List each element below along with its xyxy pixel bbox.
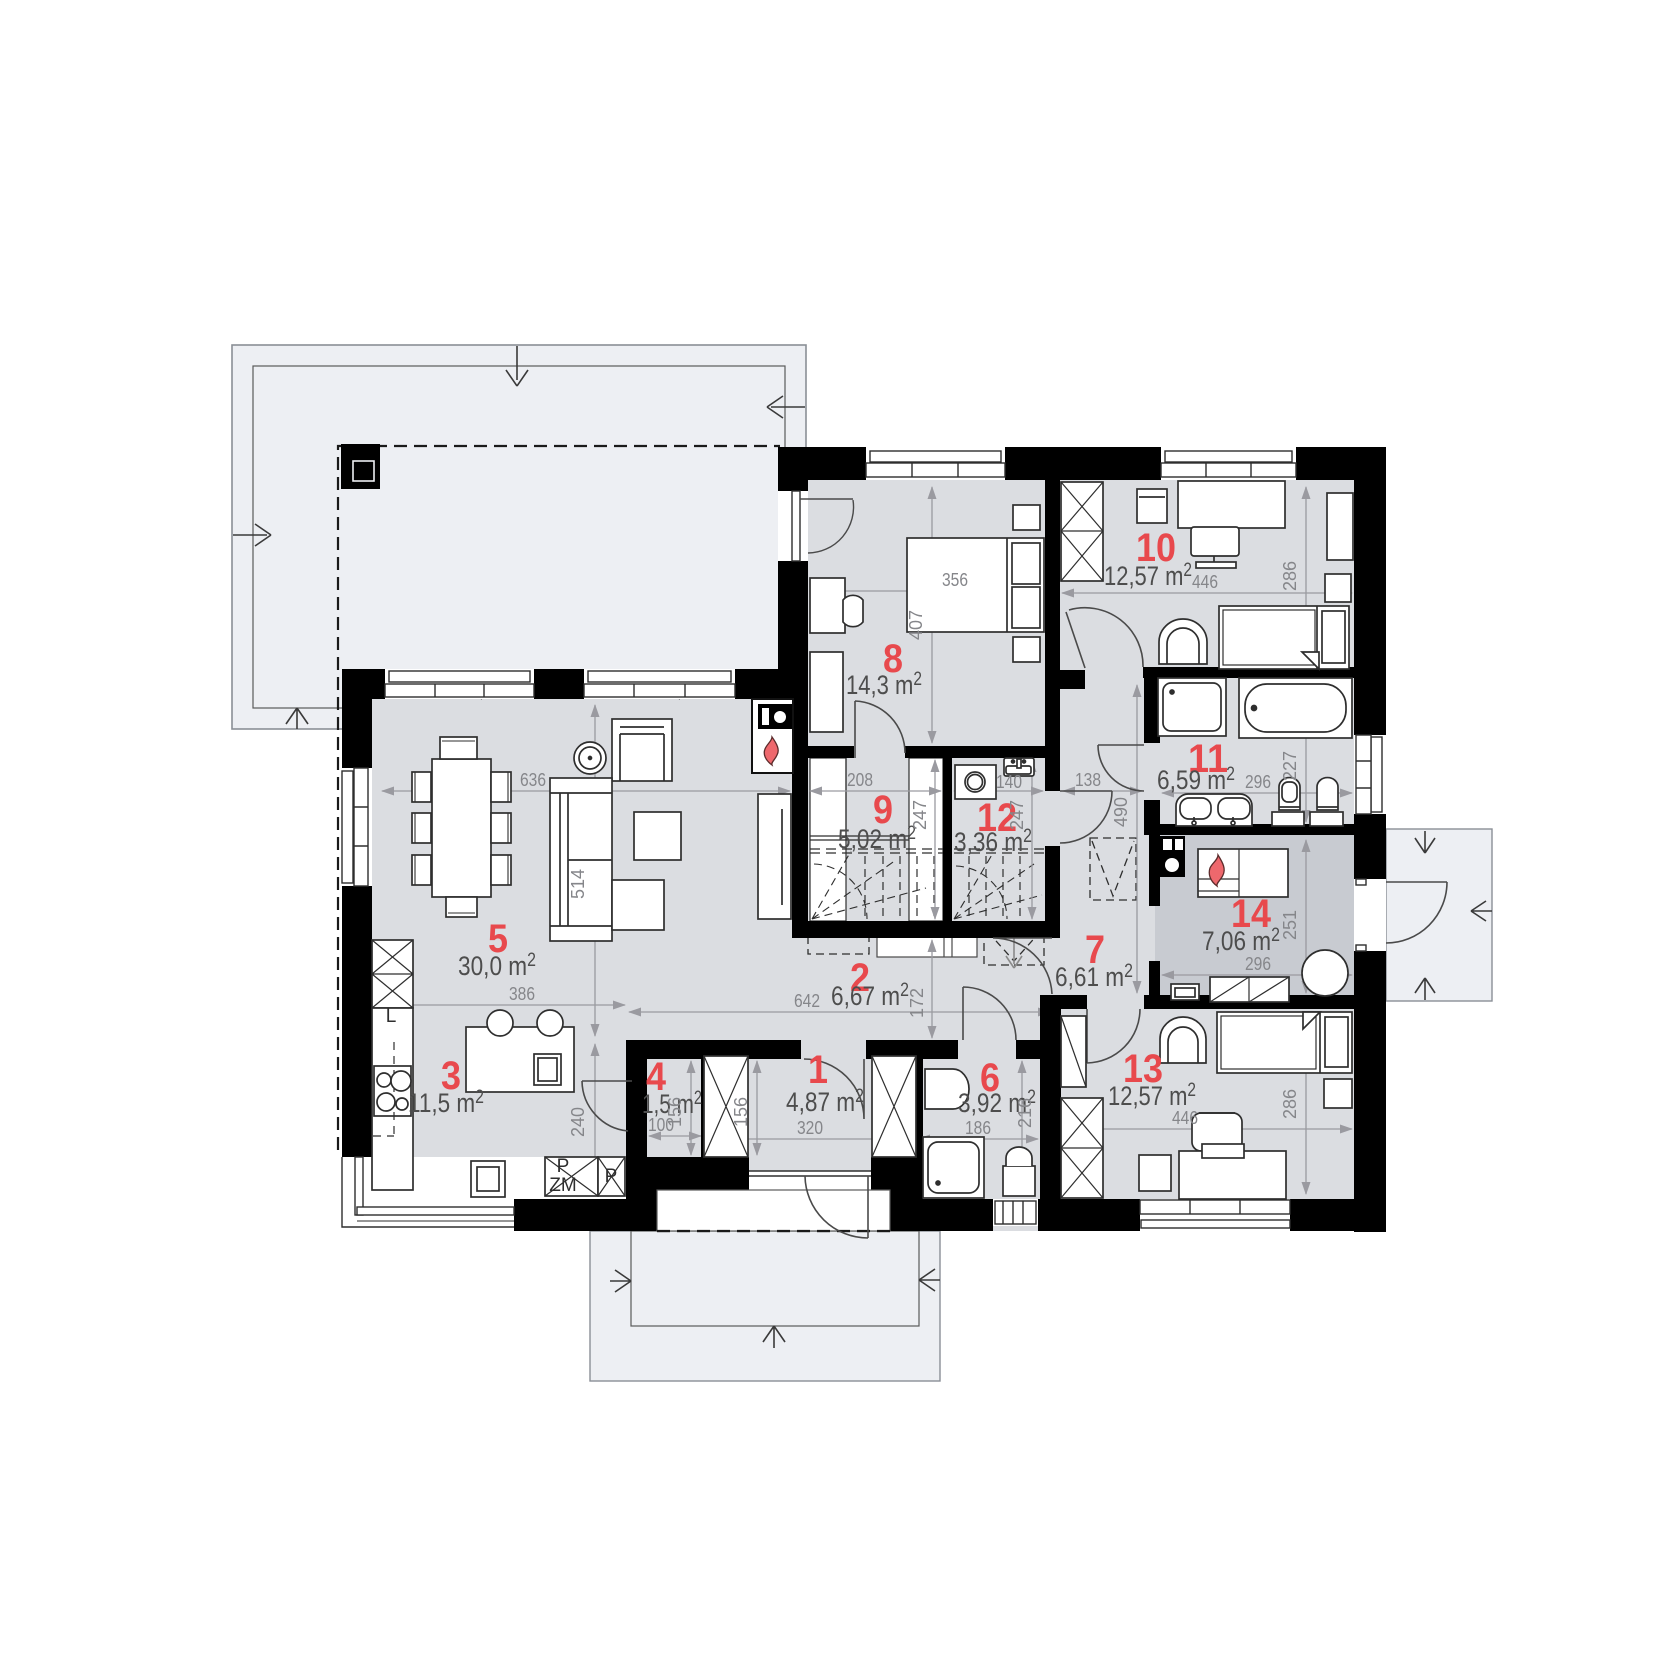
svg-text:247: 247	[1007, 800, 1027, 830]
svg-text:514: 514	[568, 869, 588, 899]
svg-text:386: 386	[509, 984, 535, 1004]
svg-text:216: 216	[1015, 1098, 1035, 1128]
svg-text:356: 356	[942, 570, 968, 590]
svg-text:4,87 m2: 4,87 m2	[786, 1086, 864, 1117]
svg-text:251: 251	[1280, 910, 1300, 940]
svg-text:446: 446	[1172, 1108, 1198, 1128]
svg-text:ZM: ZM	[549, 1175, 576, 1196]
svg-text:490: 490	[1111, 797, 1131, 827]
svg-text:5,02 m2: 5,02 m2	[838, 823, 916, 854]
svg-text:286: 286	[1280, 1089, 1300, 1119]
svg-text:407: 407	[906, 610, 926, 640]
svg-text:14,3 m2: 14,3 m2	[846, 669, 922, 700]
svg-text:6,61 m2: 6,61 m2	[1055, 961, 1133, 992]
svg-text:320: 320	[797, 1118, 823, 1138]
svg-text:7,06 m2: 7,06 m2	[1202, 925, 1280, 956]
svg-text:208: 208	[847, 770, 873, 790]
svg-text:172: 172	[907, 988, 927, 1018]
svg-text:156: 156	[731, 1097, 751, 1127]
svg-text:1: 1	[808, 1048, 828, 1092]
svg-text:296: 296	[1245, 954, 1271, 974]
svg-text:11,5 m2: 11,5 m2	[408, 1087, 484, 1118]
svg-text:286: 286	[1280, 561, 1300, 591]
svg-text:227: 227	[1280, 751, 1300, 781]
svg-text:L: L	[386, 1006, 397, 1027]
svg-text:30,0 m2: 30,0 m2	[458, 950, 536, 981]
svg-text:6,59 m2: 6,59 m2	[1157, 764, 1235, 795]
svg-text:296: 296	[1245, 772, 1271, 792]
svg-text:156: 156	[665, 1097, 685, 1127]
svg-text:636: 636	[520, 770, 546, 790]
svg-text:12,57 m2: 12,57 m2	[1104, 560, 1192, 591]
svg-text:446: 446	[1192, 572, 1218, 592]
svg-text:240: 240	[568, 1107, 588, 1137]
svg-text:186: 186	[965, 1118, 991, 1138]
svg-text:12,57 m2: 12,57 m2	[1108, 1080, 1196, 1111]
svg-text:P: P	[557, 1156, 570, 1177]
svg-text:247: 247	[910, 800, 930, 830]
svg-text:138: 138	[1075, 770, 1101, 790]
svg-text:642: 642	[794, 991, 820, 1011]
svg-text:P: P	[605, 1166, 618, 1187]
svg-text:6,67 m2: 6,67 m2	[831, 980, 909, 1011]
svg-text:140: 140	[996, 772, 1022, 792]
